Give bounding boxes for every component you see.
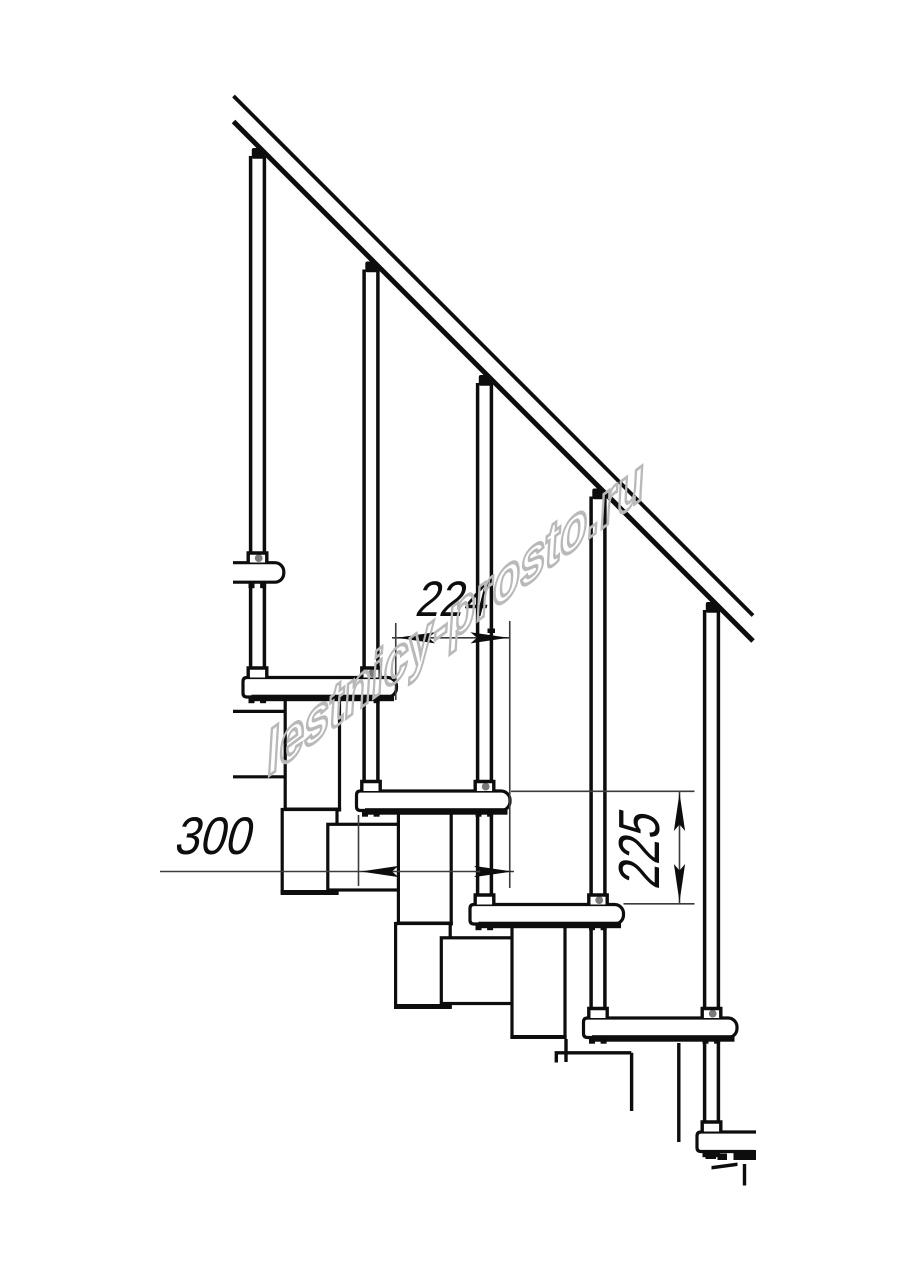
svg-text:300: 300	[170, 806, 261, 866]
